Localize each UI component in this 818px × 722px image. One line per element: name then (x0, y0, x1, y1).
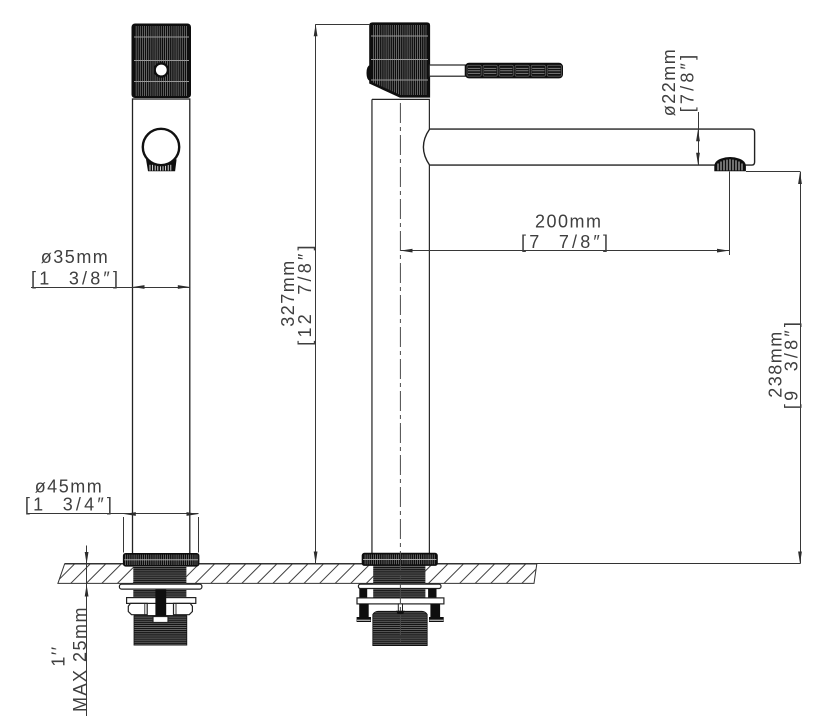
svg-text:MAX 25mm: MAX 25mm (70, 606, 90, 712)
svg-text:ø35mm: ø35mm (41, 247, 110, 267)
svg-text:[7/8″]: [7/8″] (678, 52, 698, 113)
svg-text:[7 7/8″]: [7 7/8″] (521, 232, 611, 252)
svg-text:[1 3/4″]: [1 3/4″] (25, 495, 115, 515)
svg-text:200mm: 200mm (535, 212, 603, 232)
svg-text:[9 3/8″]: [9 3/8″] (782, 319, 802, 409)
svg-text:1′′: 1′′ (49, 645, 69, 666)
svg-text:ø22mm: ø22mm (659, 48, 679, 117)
svg-text:[1 3/8″]: [1 3/8″] (31, 269, 121, 289)
svg-text:[12 7/8″]: [12 7/8″] (295, 242, 315, 345)
